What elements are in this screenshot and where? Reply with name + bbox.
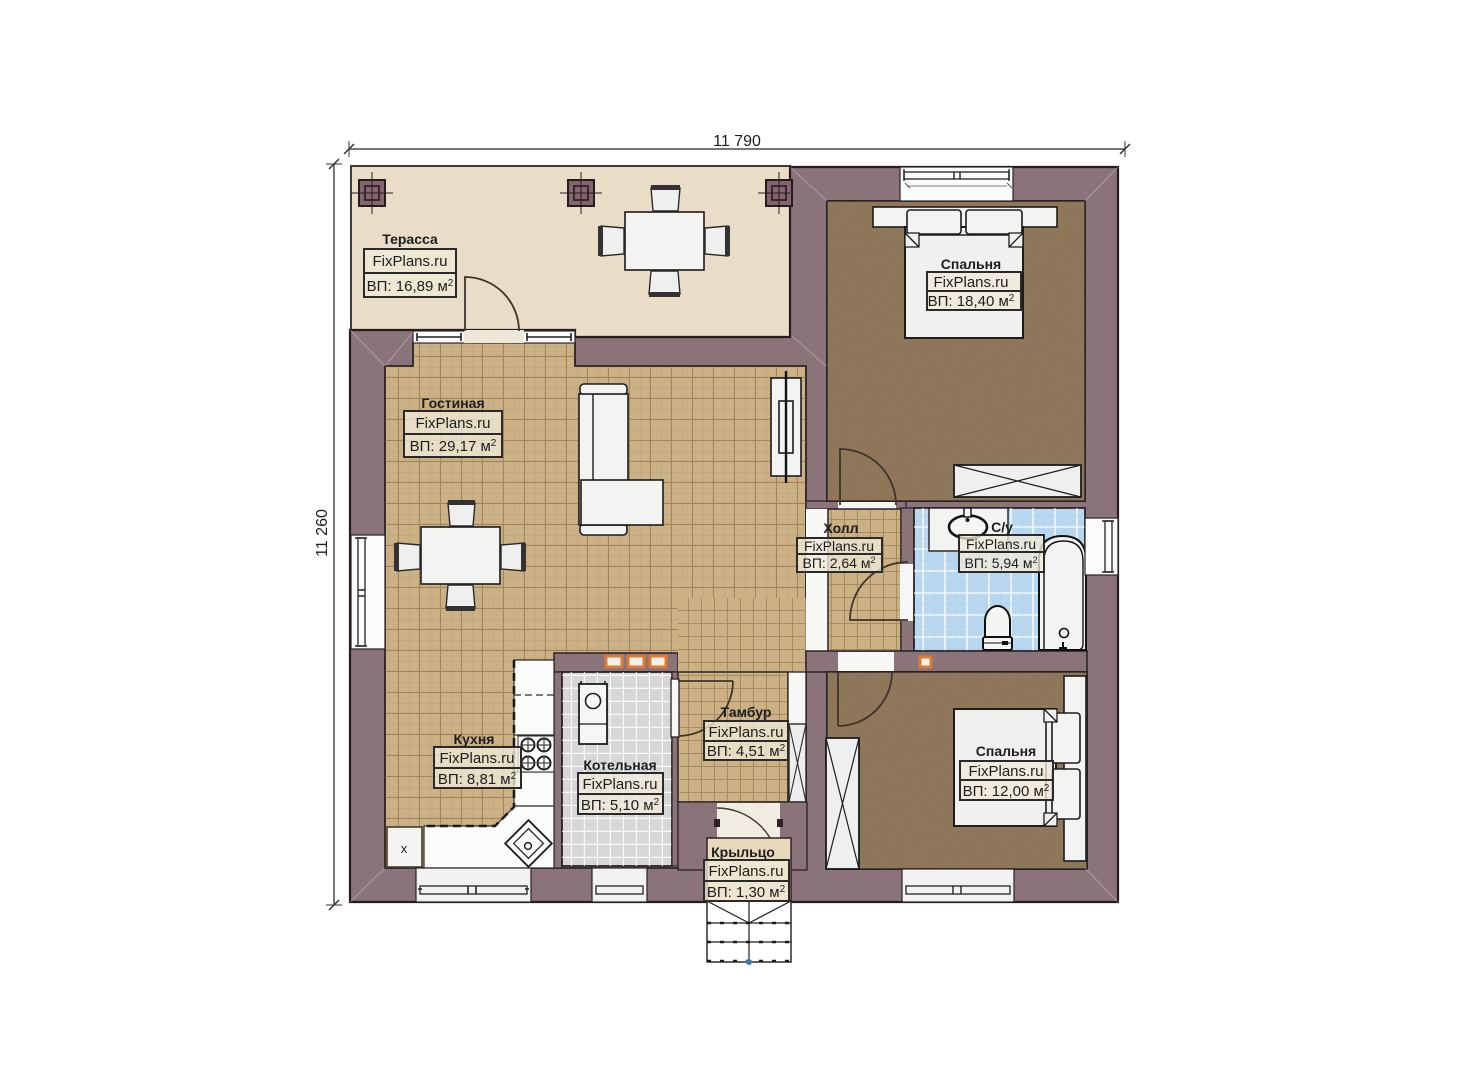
svg-text:Спальня: Спальня — [976, 743, 1036, 759]
svg-text:FixPlans.ru: FixPlans.ru — [415, 415, 490, 432]
svg-text:FixPlans.ru: FixPlans.ru — [582, 776, 657, 793]
svg-text:ВП: 4,51 м2: ВП: 4,51 м2 — [707, 743, 786, 760]
svg-text:Крыльцо: Крыльцо — [711, 844, 775, 860]
svg-text:FixPlans.ru: FixPlans.ru — [966, 536, 1036, 552]
svg-text:FixPlans.ru: FixPlans.ru — [708, 724, 783, 741]
svg-text:FixPlans.ru: FixPlans.ru — [933, 274, 1008, 291]
svg-text:ВП: 5,10 м2: ВП: 5,10 м2 — [581, 797, 660, 814]
svg-text:С/у: С/у — [991, 519, 1013, 535]
svg-text:ВП: 18,40 м2: ВП: 18,40 м2 — [928, 293, 1015, 310]
svg-text:Холл: Холл — [823, 520, 858, 536]
svg-text:ВП: 12,00 м2: ВП: 12,00 м2 — [963, 783, 1050, 800]
svg-text:ВП: 29,17 м2: ВП: 29,17 м2 — [410, 438, 497, 455]
svg-text:Котельная: Котельная — [583, 757, 656, 773]
svg-text:FixPlans.ru: FixPlans.ru — [439, 750, 514, 767]
svg-text:ВП: 16,89 м2: ВП: 16,89 м2 — [367, 278, 454, 295]
svg-text:11 260: 11 260 — [314, 509, 331, 557]
svg-text:Тамбур: Тамбур — [721, 704, 772, 720]
svg-text:Кухня: Кухня — [454, 731, 495, 747]
svg-text:ВП: 1,30 м2: ВП: 1,30 м2 — [707, 884, 786, 901]
svg-text:ВП: 5,94 м2: ВП: 5,94 м2 — [965, 555, 1038, 571]
svg-text:FixPlans.ru: FixPlans.ru — [968, 763, 1043, 780]
svg-text:11 790: 11 790 — [713, 133, 761, 150]
svg-text:ВП: 8,81 м2: ВП: 8,81 м2 — [438, 771, 517, 788]
svg-text:ВП: 2,64 м2: ВП: 2,64 м2 — [803, 555, 876, 571]
svg-text:FixPlans.ru: FixPlans.ru — [804, 538, 874, 554]
svg-text:Терасса: Терасса — [382, 231, 438, 247]
svg-text:Гостиная: Гостиная — [421, 395, 484, 411]
svg-text:FixPlans.ru: FixPlans.ru — [708, 863, 783, 880]
svg-text:FixPlans.ru: FixPlans.ru — [372, 253, 447, 270]
svg-text:x: x — [401, 841, 408, 856]
svg-text:Спальня: Спальня — [941, 256, 1001, 272]
